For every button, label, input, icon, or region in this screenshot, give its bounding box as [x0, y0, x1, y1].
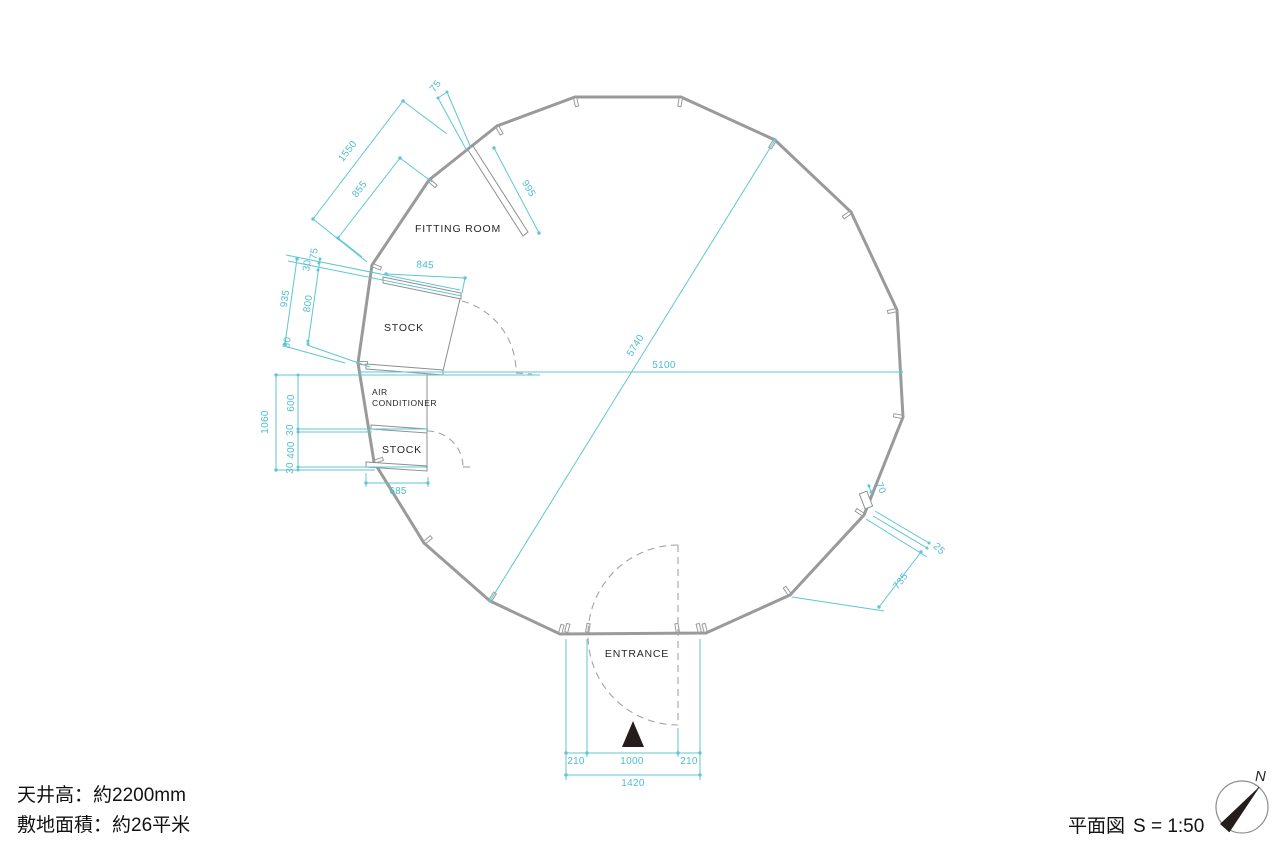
wall-joint-tick [783, 586, 790, 595]
dim-30-a: 30 [301, 259, 314, 272]
dim-845: 845 [416, 260, 434, 272]
stock-upper-door-swing-arc [462, 301, 516, 372]
wall-joint-tick [574, 98, 579, 107]
fitting-room-label: FITTING ROOM [415, 223, 501, 235]
stock-lower-door-swing-arc [427, 431, 463, 467]
wall-joint-tick [675, 623, 680, 632]
entrance-door [588, 545, 678, 747]
ceiling-height-note: 天井高：約2200mm [17, 784, 186, 806]
title-block: 平面図 S = 1:50 [1068, 816, 1204, 837]
stock-lower-label: STOCK [382, 444, 422, 456]
compass: N [1216, 768, 1268, 833]
dim-25: 25 [931, 541, 947, 557]
footer-notes: 天井高：約2200mm 敷地面積：約26平米 [17, 784, 190, 836]
dim-600: 600 [286, 394, 297, 412]
wall-joint-tick [855, 509, 864, 516]
entrance-label: ENTRANCE [605, 648, 669, 660]
dim-1420: 1420 [621, 778, 645, 789]
dim-855: 855 [350, 179, 370, 200]
drawing-title: 平面図 [1068, 816, 1125, 837]
dim-1060: 1060 [260, 410, 271, 434]
dim-995: 995 [519, 178, 537, 199]
compass-north-label: N [1255, 768, 1266, 785]
dim-70: 70 [873, 481, 888, 496]
site-area-note: 敷地面積：約26平米 [17, 814, 190, 836]
wall-joint-ticks [359, 98, 902, 634]
dim-685: 685 [389, 486, 407, 497]
wall-joint-tick [887, 309, 896, 314]
dim-400: 400 [286, 441, 297, 459]
dim-1550: 1550 [337, 139, 360, 164]
wall-joint-tick [893, 414, 902, 419]
wall-joint-tick [496, 126, 503, 135]
air-conditioner-label-line2: CONDITIONER [372, 398, 437, 408]
wall-joint-tick [702, 623, 707, 632]
wall-joint-tick [696, 623, 701, 632]
dim-210-right: 210 [680, 756, 698, 767]
right-wall-panel [859, 491, 872, 509]
entrance-arrow [622, 721, 644, 747]
dim-75-top: 75 [428, 78, 444, 94]
dimension-labels: 1550 855 75 995 845 30 75 935 800 30 106… [260, 78, 947, 789]
wall-joint-tick [678, 98, 683, 107]
outer-wall [358, 97, 903, 634]
wall-joint-tick [559, 624, 564, 633]
dim-30-d: 30 [285, 462, 296, 474]
drawing-scale: S = 1:50 [1133, 816, 1204, 837]
dim-735: 735 [891, 571, 911, 592]
compass-needle-edge [1229, 787, 1259, 832]
dim-75-b: 75 [308, 247, 321, 260]
dim-1000: 1000 [620, 756, 644, 767]
air-conditioner-label-line1: AIR [372, 387, 388, 397]
dim-5740: 5740 [625, 333, 647, 359]
dim-210-left: 210 [567, 756, 585, 767]
stock-upper-label: STOCK [384, 322, 424, 334]
dim-30-b: 30 [281, 336, 294, 349]
compass-needle-icon [1220, 787, 1259, 832]
floor-plan-page: 1550 855 75 995 845 30 75 935 800 30 106… [0, 0, 1280, 853]
wall-joint-tick [424, 536, 433, 544]
wall-joint-tick [565, 623, 570, 632]
floor-plan-canvas: 1550 855 75 995 845 30 75 935 800 30 106… [0, 0, 1280, 853]
dim-5100: 5100 [652, 360, 676, 371]
wall-joint-tick [842, 211, 851, 219]
dim-30-c: 30 [285, 424, 296, 436]
wall-joint-tick [372, 264, 381, 270]
